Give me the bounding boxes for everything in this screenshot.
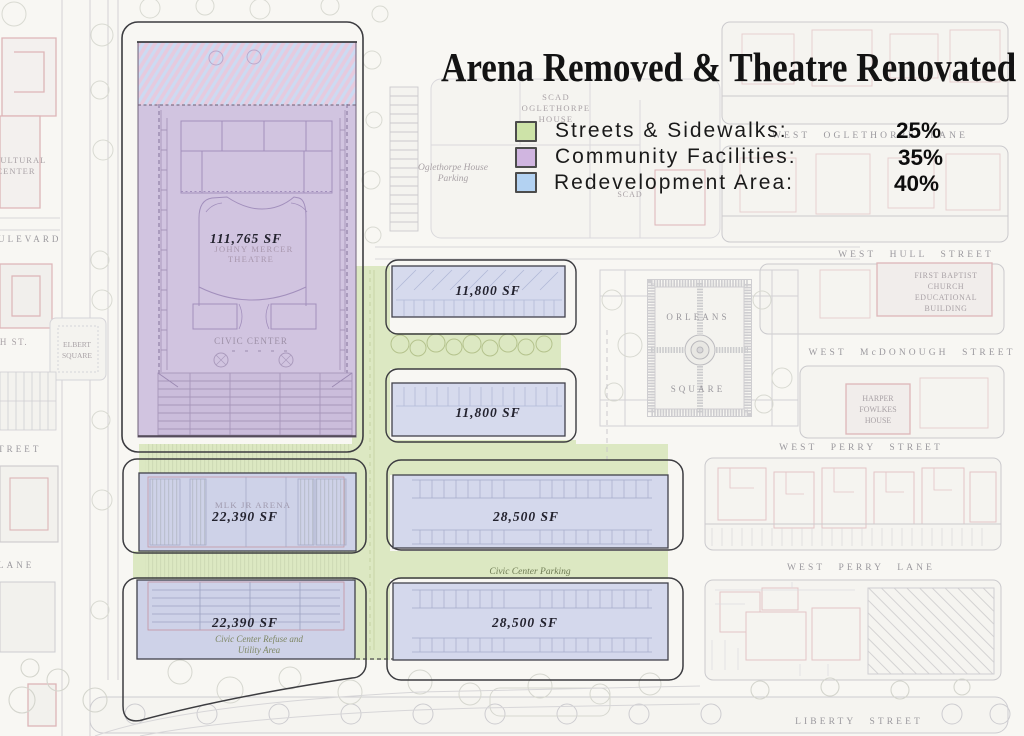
svg-text:H ST.: H ST.	[0, 337, 28, 347]
svg-text:CENTER: CENTER	[0, 166, 36, 176]
svg-text:WEST PERRY LANE: WEST PERRY LANE	[787, 563, 935, 573]
svg-text:Oglethorpe House: Oglethorpe House	[418, 163, 488, 173]
svg-text:ORLEANS: ORLEANS	[666, 312, 729, 322]
svg-text:CULTURAL: CULTURAL	[0, 155, 46, 165]
svg-text:28,500 SF: 28,500 SF	[491, 615, 558, 630]
svg-text:OGLETHORPE: OGLETHORPE	[522, 103, 591, 113]
svg-text:ULEVARD: ULEVARD	[0, 234, 62, 244]
svg-text:SQUARE: SQUARE	[62, 351, 92, 360]
svg-text:22,390 SF: 22,390 SF	[211, 615, 278, 630]
svg-text:Utility Area: Utility Area	[238, 645, 281, 655]
svg-text:11,800 SF: 11,800 SF	[455, 283, 520, 298]
svg-text:EDUCATIONAL: EDUCATIONAL	[915, 293, 977, 302]
svg-text:11,800 SF: 11,800 SF	[455, 405, 520, 420]
svg-text:ELBERT: ELBERT	[63, 340, 91, 349]
svg-text:JOHNY MERCER: JOHNY MERCER	[214, 244, 293, 254]
svg-text:BUILDING: BUILDING	[925, 304, 968, 313]
svg-text:FIRST BAPTIST: FIRST BAPTIST	[914, 271, 977, 280]
svg-text:CIVIC CENTER: CIVIC CENTER	[214, 336, 288, 346]
svg-text:WEST PERRY STREET: WEST PERRY STREET	[779, 443, 943, 453]
svg-text:SQUARE: SQUARE	[671, 384, 726, 394]
svg-text:WEST HULL STREET: WEST HULL STREET	[838, 250, 994, 260]
svg-text:Civic Center Refuse and: Civic Center Refuse and	[215, 634, 303, 644]
svg-text:22,390 SF: 22,390 SF	[211, 509, 278, 524]
svg-text:28,500 SF: 28,500 SF	[492, 509, 559, 524]
svg-text:HOUSE: HOUSE	[865, 416, 891, 425]
svg-text:THEATRE: THEATRE	[228, 254, 274, 264]
svg-text:TREET: TREET	[0, 444, 42, 454]
svg-text:CHURCH: CHURCH	[928, 282, 964, 291]
svg-text:FOWLKES: FOWLKES	[859, 405, 896, 414]
svg-text:Parking: Parking	[437, 174, 469, 184]
svg-text:HARPER: HARPER	[862, 394, 894, 403]
svg-text:SCAD: SCAD	[542, 92, 570, 102]
svg-text:LIBERTY STREET: LIBERTY STREET	[795, 717, 923, 727]
svg-text:LANE: LANE	[0, 560, 34, 570]
svg-text:Civic Center Parking: Civic Center Parking	[489, 567, 571, 577]
svg-text:WEST McDONOUGH STREET: WEST McDONOUGH STREET	[808, 348, 1015, 358]
